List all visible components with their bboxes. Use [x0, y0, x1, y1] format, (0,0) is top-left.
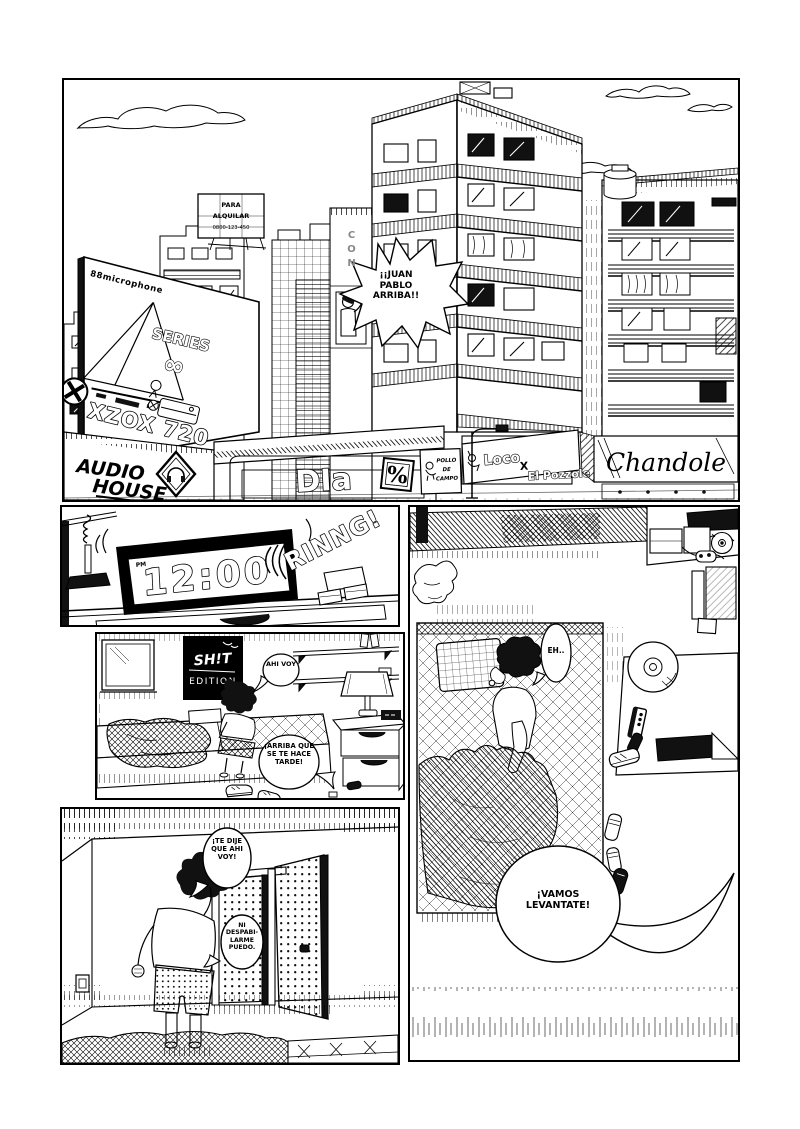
crumpled-clothes: [413, 561, 457, 604]
vertical-building-sign: CON: [346, 230, 357, 272]
floor-texture: [410, 987, 738, 1039]
panel-overhead-room: EH.. ¡VAMOS LEVANTATE!: [408, 505, 740, 1062]
clock-radio: [381, 710, 401, 720]
svg-text:CAMPO: CAMPO: [436, 476, 459, 483]
speech-bubble-ni-despabilarme: NI DESPABI- LARME PUEDO.: [224, 922, 260, 951]
clock-art: PM 12:00 RINNG!: [62, 507, 398, 625]
panel-bedroom: SH!T EDITION: [95, 632, 405, 800]
cd-small-icon: [712, 533, 733, 554]
speech-bubble-juan-pablo: ¡¡JUAN PABLO ARRIBA!!: [364, 270, 428, 302]
cd-disc: [628, 642, 678, 692]
pollo-sign: POLLO DE CAMPO: [420, 449, 462, 494]
pozzole-sign: El Pozzole: [527, 467, 590, 483]
dia-logo-mark: %: [381, 458, 414, 491]
crumpled-blanket: [107, 718, 211, 767]
light-switch: [76, 975, 89, 992]
rent-sign-line3: 0800-123-450: [213, 225, 250, 231]
right-building: [584, 165, 738, 440]
floor-blanket: [62, 1032, 398, 1064]
wardrobe: [692, 567, 736, 634]
panel-alarm-clock: PM 12:00 RINNG!: [60, 505, 400, 627]
svg-text:DE: DE: [443, 467, 452, 473]
svg-text:%: %: [385, 461, 409, 489]
rent-sign: PARA ALQUILAR 0800-123-450: [198, 194, 264, 238]
nightstand: [333, 714, 403, 790]
alarm-clock: PM 12:00: [96, 519, 311, 615]
rent-sign-line2: ALQUILAR: [213, 212, 250, 220]
window: [100, 640, 157, 699]
rent-sign-line1: PARA: [221, 201, 240, 209]
keyboard-object: [656, 735, 716, 761]
panel-door: ¡TE DIJE QUE AHI VOY! NI DESPABI- LARME …: [60, 807, 400, 1065]
svg-text:POLLO: POLLO: [436, 458, 456, 465]
poster-title: SH!T: [193, 651, 233, 670]
loco-sign: Loco: [483, 450, 521, 469]
speech-bubble-ahivoy-oval: [263, 654, 299, 686]
console-shelf: [647, 507, 738, 565]
sfx-ring: RINNG!: [280, 507, 386, 576]
bedroom-art: SH!T EDITION: [97, 634, 403, 798]
chandole-sign: Chandole: [606, 448, 726, 477]
speech-bubble-vamos-levantate: ¡VAMOS LEVANTATE!: [514, 889, 602, 911]
folded-glasses: [318, 567, 368, 605]
speech-bubble-ahi-voy: AHI VOY: [265, 661, 297, 669]
desk-lamp-arm: [62, 512, 117, 589]
speech-bubble-eh: EH..: [541, 647, 571, 656]
speech-bubble-arriba: ¡ARRIBA QUE SE TE HACE TARDE!: [263, 742, 315, 766]
game-controller-icon: [696, 551, 716, 562]
door-knob: [300, 945, 309, 952]
comic-page: PARA ALQUILAR 0800-123-450: [0, 0, 800, 1129]
furniture-edge: [62, 521, 69, 625]
panel-city-street: PARA ALQUILAR 0800-123-450: [62, 78, 740, 502]
table-lamp: [341, 672, 393, 716]
overhead-art: [410, 507, 738, 1060]
water-tank: [604, 165, 636, 199]
speech-bubble-te-dije: ¡TE DIJE QUE AHI VOY!: [208, 837, 246, 861]
